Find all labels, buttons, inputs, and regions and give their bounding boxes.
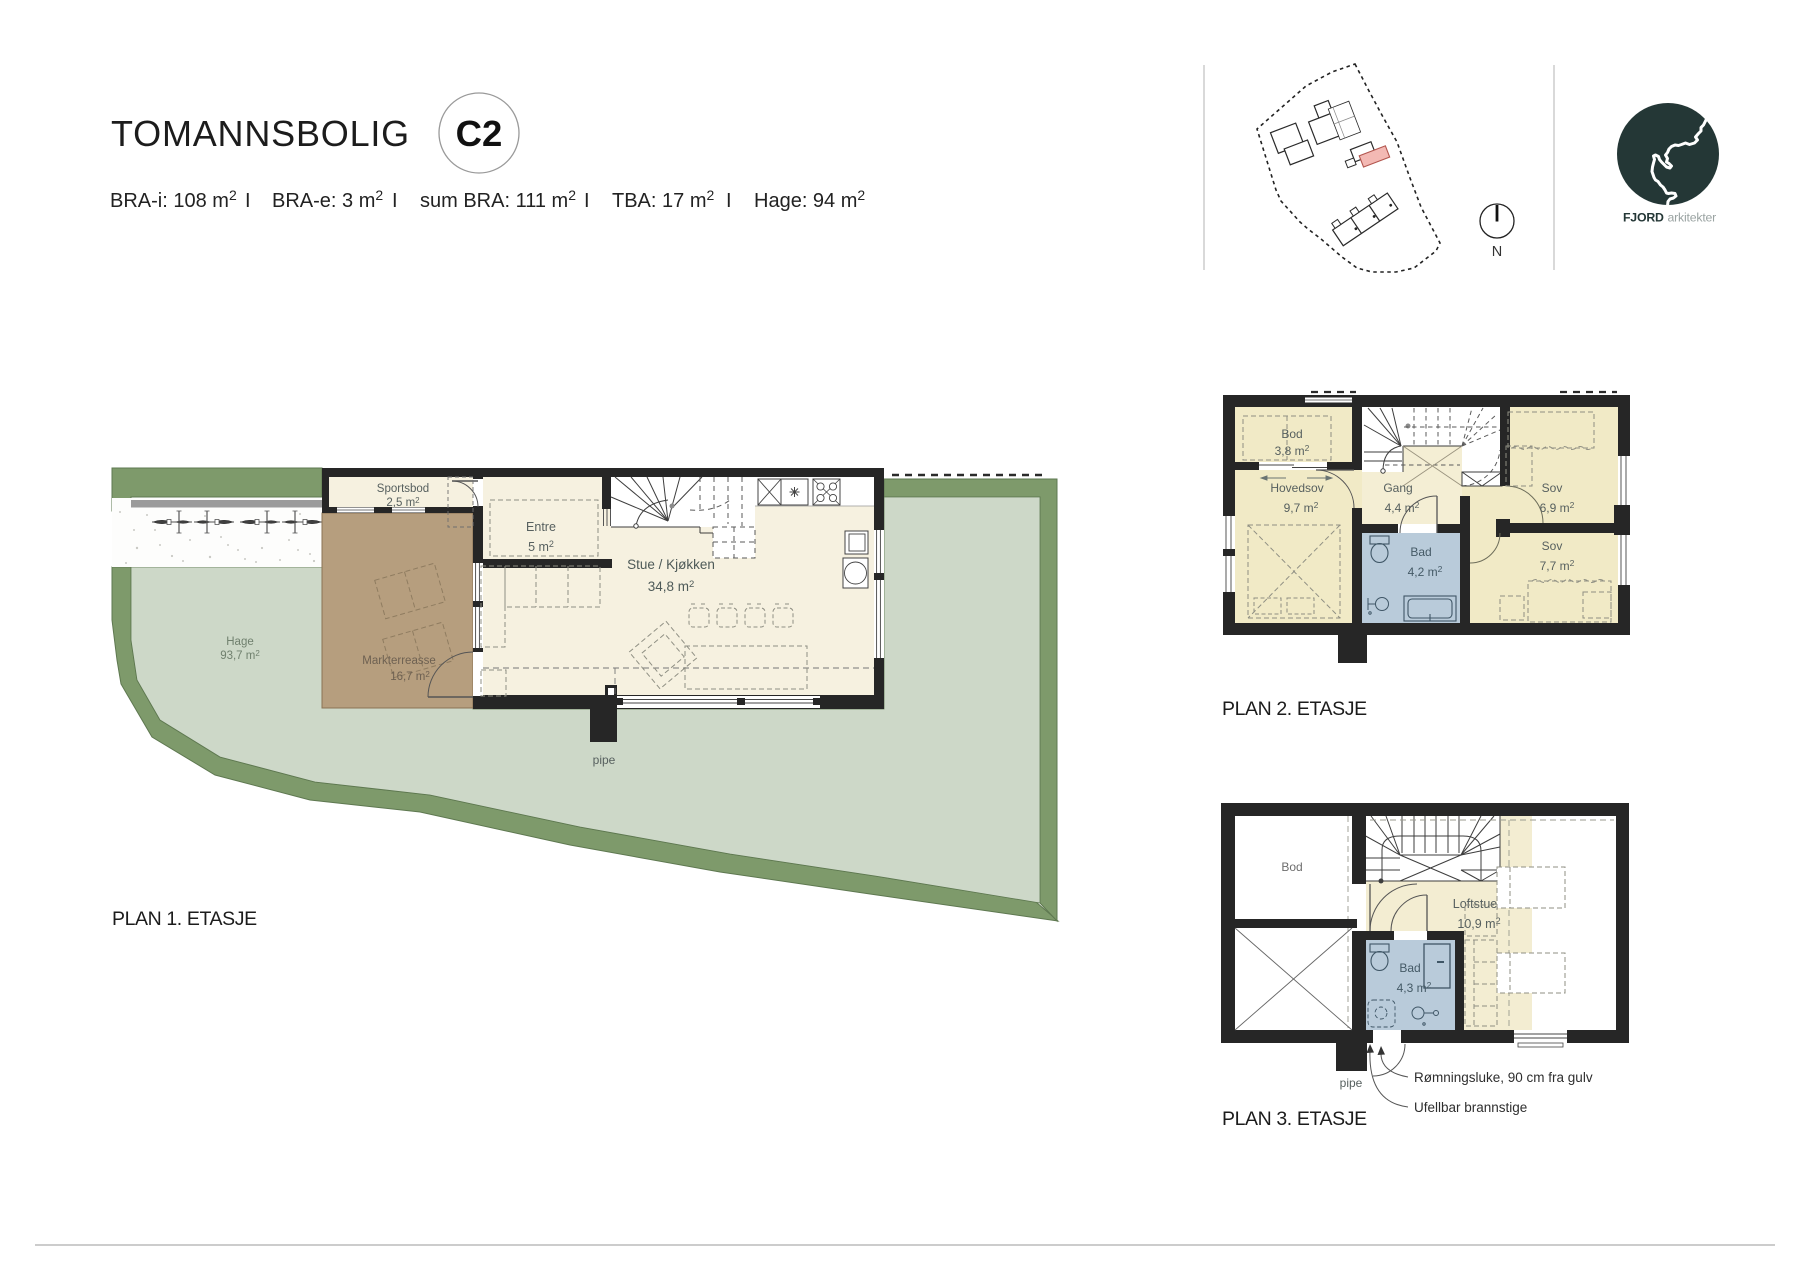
svg-text:pipe: pipe [593, 753, 616, 767]
svg-text:Gang: Gang [1383, 481, 1412, 495]
svg-text:PLAN 1. ETASJE: PLAN 1. ETASJE [112, 908, 257, 930]
svg-text:9,7 m2: 9,7 m2 [1284, 500, 1319, 515]
svg-text:BRA-e: 3 m2: BRA-e: 3 m2 [272, 187, 383, 212]
svg-text:Bod: Bod [1281, 427, 1302, 441]
svg-text:3,8 m2: 3,8 m2 [1275, 443, 1310, 458]
svg-text:C2: C2 [456, 113, 503, 154]
svg-text:I: I [584, 190, 590, 212]
svg-text:Bad: Bad [1399, 961, 1420, 975]
svg-text:34,8 m2: 34,8 m2 [648, 579, 695, 594]
svg-text:I: I [392, 190, 398, 212]
svg-text:TOMANNSBOLIG: TOMANNSBOLIG [111, 113, 410, 154]
svg-text:FJORD: FJORD [1623, 211, 1664, 225]
svg-text:4,3 m2: 4,3 m2 [1397, 980, 1432, 995]
svg-text:Hage: 94 m2: Hage: 94 m2 [754, 187, 865, 212]
svg-text:Bod: Bod [1281, 860, 1302, 874]
svg-text:Hage: Hage [226, 636, 254, 648]
svg-text:Ufellbar brannstige: Ufellbar brannstige [1414, 1100, 1527, 1115]
svg-text:Sov: Sov [1542, 539, 1563, 553]
svg-text:Entre: Entre [526, 520, 556, 534]
svg-text:arkitekter: arkitekter [1668, 211, 1717, 225]
svg-text:Sportsbod: Sportsbod [377, 483, 429, 495]
svg-text:Bad: Bad [1410, 545, 1431, 559]
svg-text:PLAN 2. ETASJE: PLAN 2. ETASJE [1222, 698, 1367, 720]
svg-text:Stue / Kjøkken: Stue / Kjøkken [627, 557, 715, 572]
svg-text:BRA-i: 108 m2: BRA-i: 108 m2 [110, 187, 237, 212]
svg-text:16,7 m2: 16,7 m2 [390, 670, 430, 683]
svg-text:TBA: 17 m2: TBA: 17 m2 [612, 187, 714, 212]
svg-text:Loftstue: Loftstue [1453, 897, 1498, 911]
svg-text:Rømningsluke, 90 cm fra gulv: Rømningsluke, 90 cm fra gulv [1414, 1070, 1593, 1085]
svg-text:6,9 m2: 6,9 m2 [1540, 500, 1575, 515]
svg-text:Markterreasse: Markterreasse [362, 655, 436, 667]
svg-text:I: I [245, 190, 251, 212]
svg-text:4,4 m2: 4,4 m2 [1385, 500, 1420, 515]
svg-text:93,7 m2: 93,7 m2 [220, 649, 260, 662]
svg-text:2,5 m2: 2,5 m2 [386, 496, 420, 509]
svg-text:Sov: Sov [1542, 481, 1563, 495]
svg-text:pipe: pipe [1340, 1076, 1363, 1090]
svg-text:sum BRA: 111 m2: sum BRA: 111 m2 [420, 187, 576, 212]
svg-text:10,9 m2: 10,9 m2 [1457, 916, 1500, 931]
svg-text:4,2 m2: 4,2 m2 [1408, 564, 1443, 579]
svg-text:Hovedsov: Hovedsov [1270, 481, 1323, 495]
svg-text:7,7 m2: 7,7 m2 [1540, 558, 1575, 573]
svg-text:N: N [1492, 244, 1502, 260]
svg-text:PLAN 3. ETASJE: PLAN 3. ETASJE [1222, 1108, 1367, 1130]
svg-text:I: I [726, 190, 732, 212]
